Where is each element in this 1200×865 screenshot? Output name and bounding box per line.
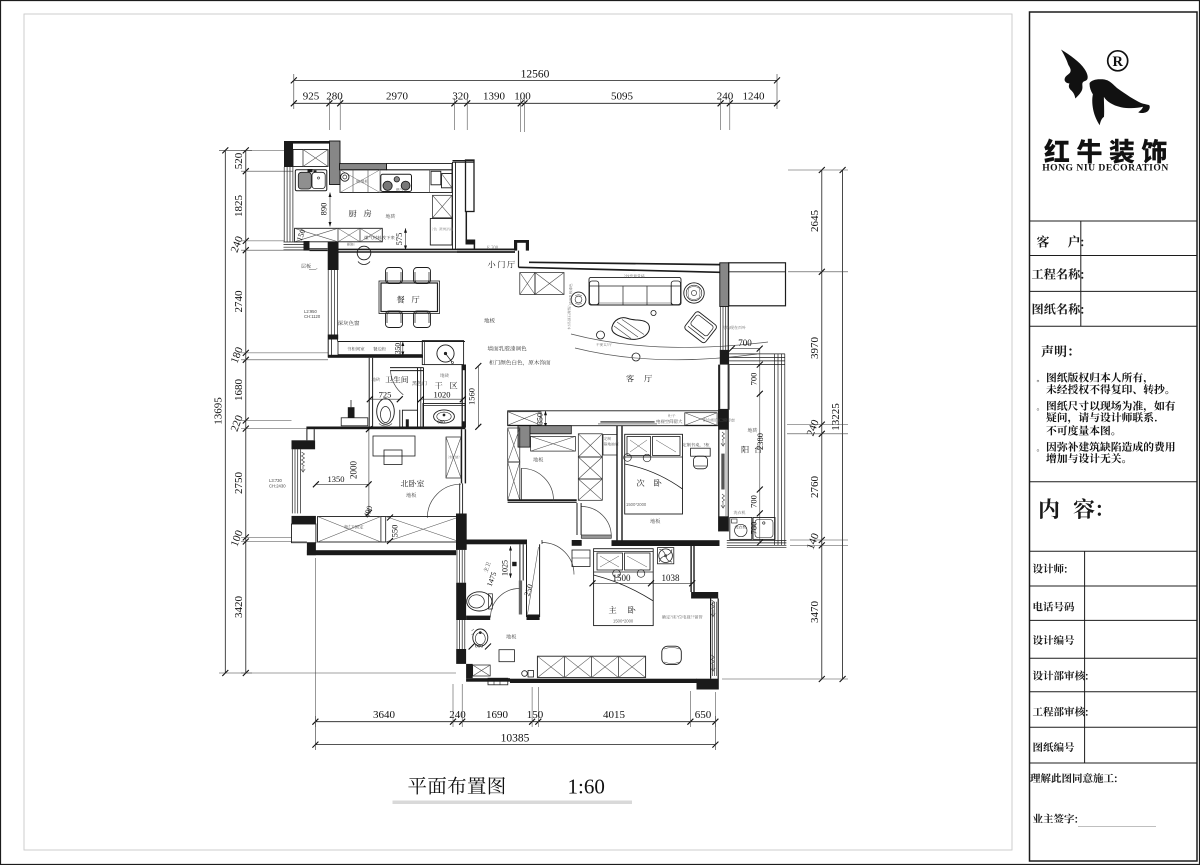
svg-text:1500: 1500 [613, 573, 632, 583]
svg-text:1:60: 1:60 [568, 775, 605, 799]
svg-text:2740: 2740 [233, 290, 245, 313]
svg-text:650: 650 [695, 709, 712, 721]
svg-text:CH:1120: CH:1120 [304, 314, 321, 319]
svg-text:L3:730: L3:730 [269, 478, 282, 483]
svg-text:1350: 1350 [328, 474, 345, 484]
svg-text:700: 700 [749, 495, 759, 508]
svg-text:1690: 1690 [486, 709, 509, 721]
svg-text:HONG NIU DECORATION: HONG NIU DECORATION [1042, 163, 1169, 174]
svg-text:925: 925 [303, 91, 320, 103]
svg-text:1390: 1390 [483, 91, 506, 103]
svg-text:780: 780 [749, 522, 759, 535]
svg-text:520: 520 [233, 152, 245, 169]
svg-text:350: 350 [393, 343, 402, 355]
svg-text:1240: 1240 [743, 91, 766, 103]
svg-text:700: 700 [749, 373, 759, 386]
svg-text:890: 890 [319, 203, 329, 216]
svg-text:100: 100 [514, 91, 531, 103]
svg-text:3970: 3970 [809, 337, 821, 360]
svg-text:1038: 1038 [662, 573, 681, 583]
svg-text:575: 575 [394, 233, 404, 246]
svg-text:2760: 2760 [809, 476, 821, 499]
svg-text:2000: 2000 [349, 461, 359, 480]
svg-text:CH:2430: CH:2430 [269, 484, 286, 489]
svg-text:1560: 1560 [467, 388, 477, 405]
svg-text:2970: 2970 [386, 91, 409, 103]
svg-text:1500*2000: 1500*2000 [626, 502, 647, 507]
svg-text:3470: 3470 [809, 601, 821, 624]
svg-text:320: 320 [452, 91, 469, 103]
svg-text:10385: 10385 [501, 733, 530, 745]
svg-text:4015: 4015 [603, 709, 626, 721]
svg-text:1025: 1025 [501, 560, 510, 576]
svg-text:5095: 5095 [611, 91, 634, 103]
svg-text:700: 700 [738, 338, 752, 348]
svg-text:1020: 1020 [434, 390, 451, 400]
svg-text:550: 550 [390, 525, 400, 538]
svg-text:2645: 2645 [809, 210, 821, 233]
svg-text:240: 240 [449, 709, 466, 721]
svg-text:1825: 1825 [233, 195, 245, 218]
svg-text:1500*2000: 1500*2000 [613, 619, 634, 624]
svg-text:R: R [1112, 54, 1123, 70]
svg-text:3420: 3420 [233, 596, 245, 619]
svg-text:3640: 3640 [373, 709, 396, 721]
svg-text:150: 150 [527, 709, 544, 721]
svg-text:725: 725 [379, 390, 392, 400]
svg-text:280: 280 [326, 91, 343, 103]
svg-text:13695: 13695 [213, 397, 225, 425]
svg-text:2750: 2750 [233, 472, 245, 495]
svg-text:600: 600 [475, 644, 484, 650]
svg-text:1680: 1680 [233, 379, 245, 402]
svg-text:240: 240 [717, 91, 734, 103]
svg-text:600: 600 [437, 421, 445, 426]
svg-text:350: 350 [536, 413, 545, 425]
svg-text:13225: 13225 [830, 403, 842, 431]
svg-text:12560: 12560 [521, 69, 550, 81]
